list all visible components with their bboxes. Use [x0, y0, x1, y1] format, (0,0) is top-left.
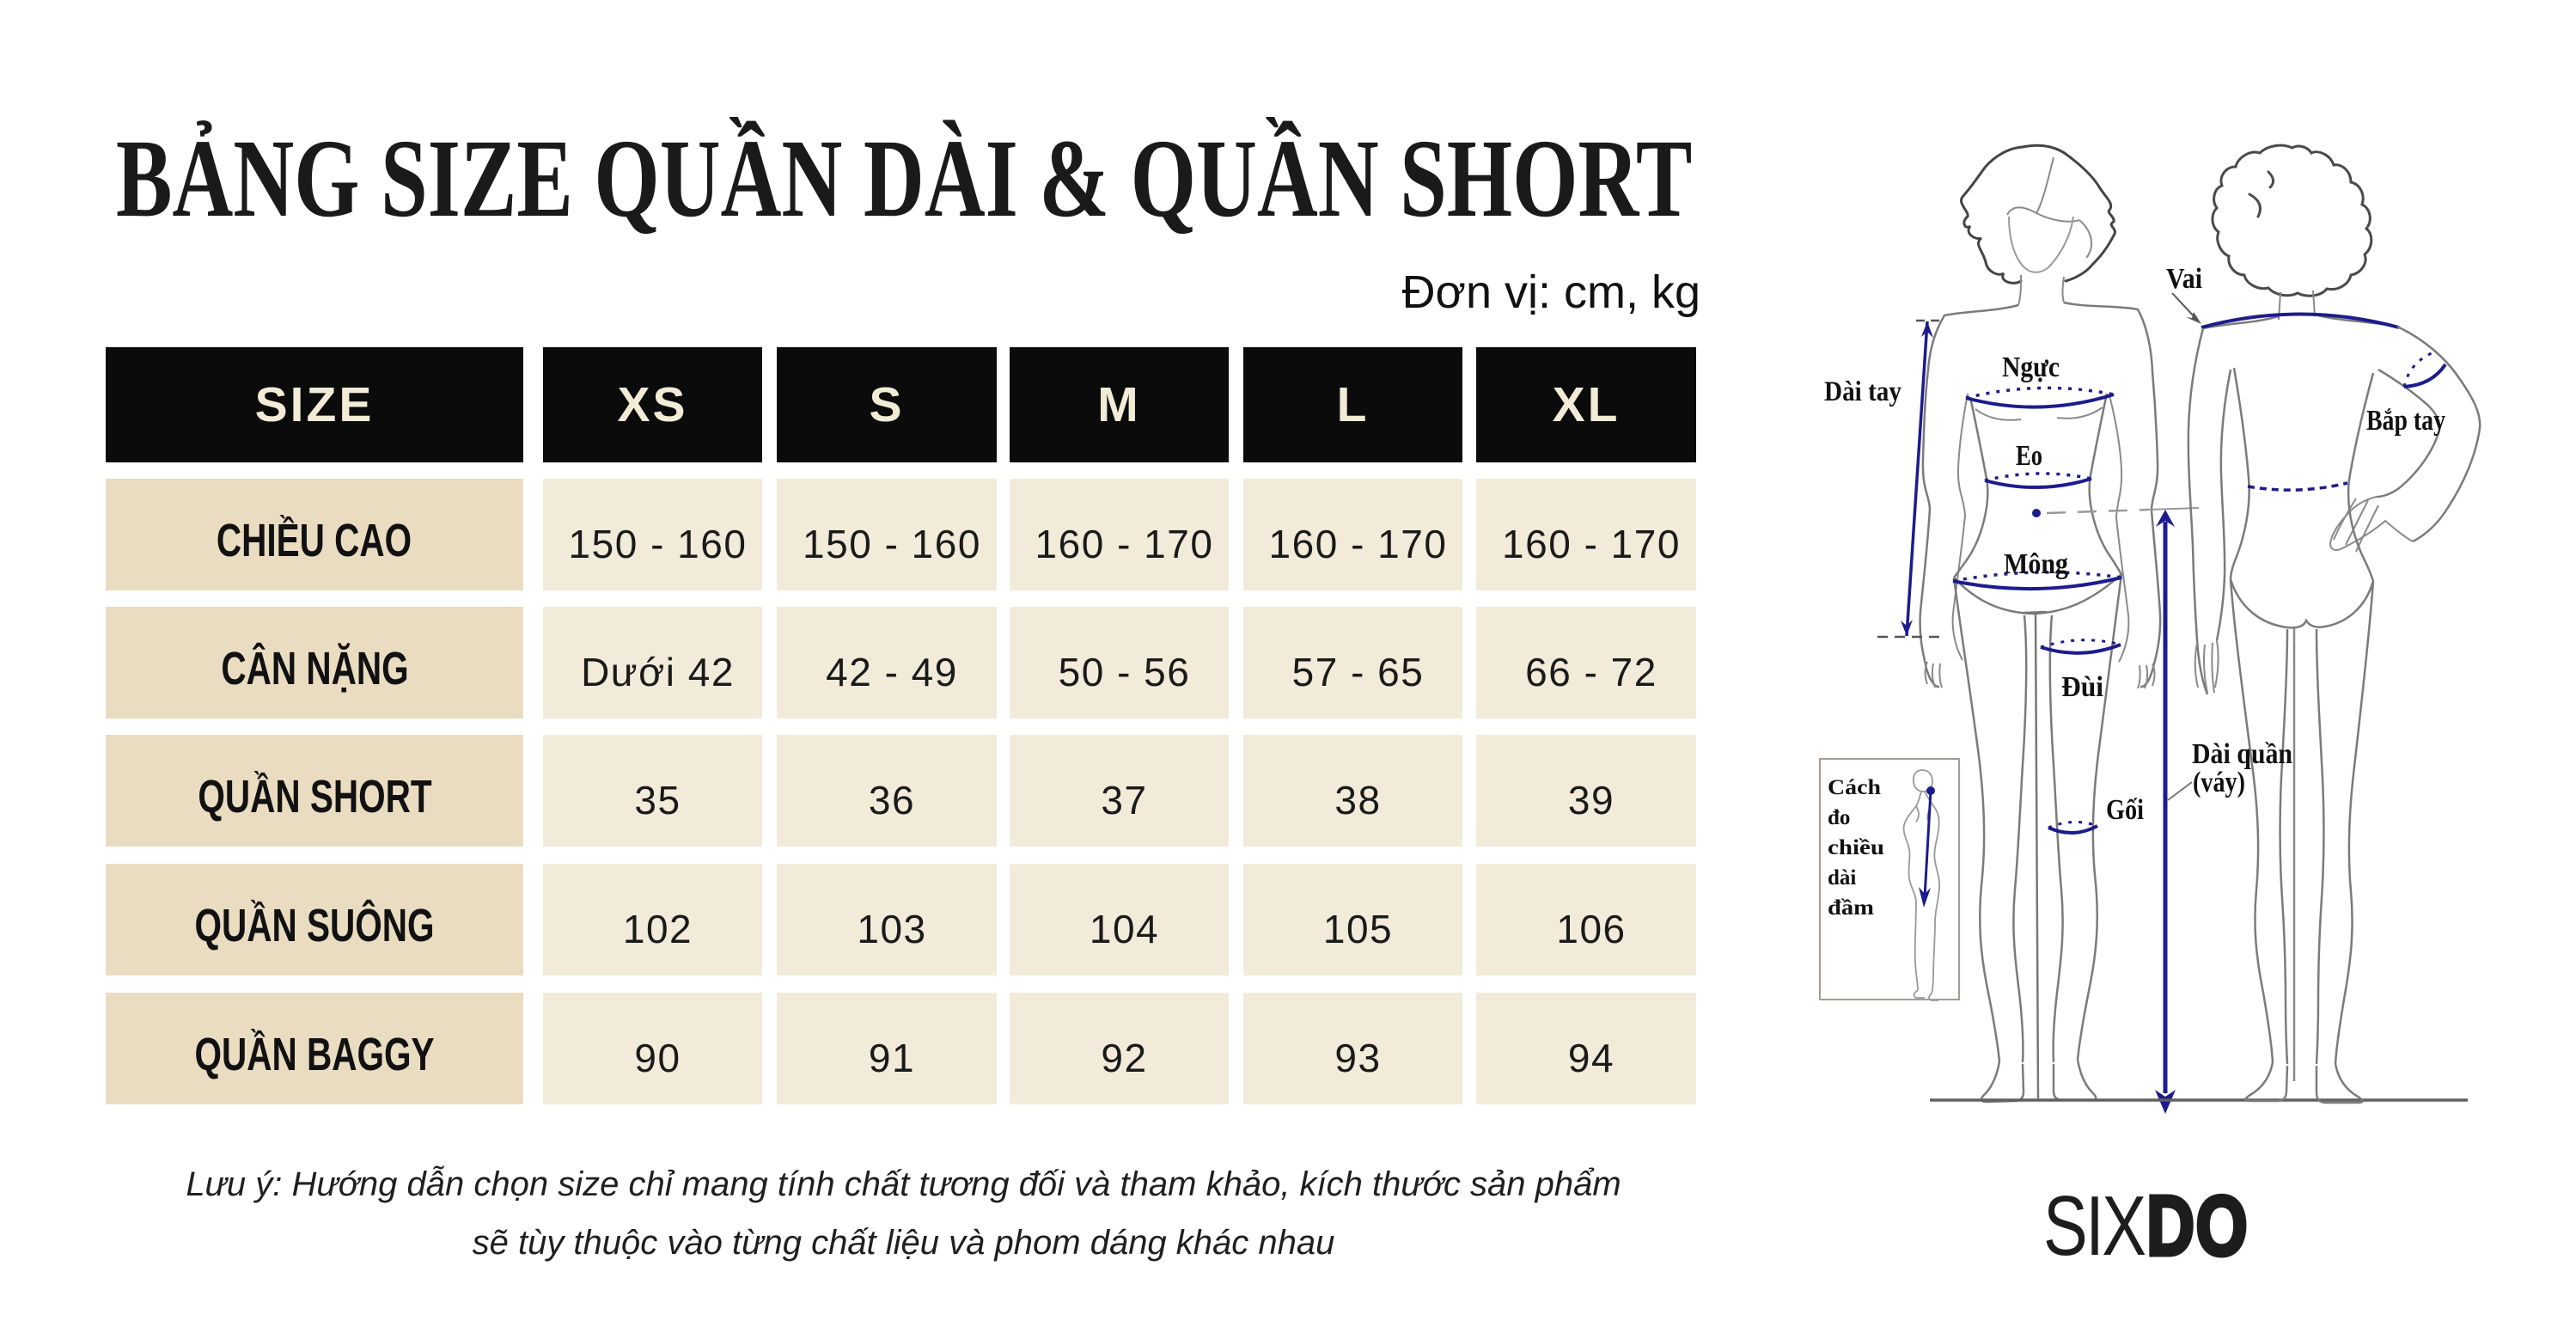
svg-text:(váy): (váy) [2193, 767, 2245, 798]
svg-text:Dài tay: Dài tay [1824, 376, 1901, 407]
svg-text:Ngực: Ngực [2002, 352, 2060, 383]
svg-text:Eo: Eo [2016, 440, 2042, 472]
svg-text:Cách: Cách [1828, 776, 1881, 799]
svg-text:DO: DO [2146, 1178, 2249, 1273]
svg-text:đầm: đầm [1828, 896, 1874, 920]
svg-text:Gối: Gối [2106, 794, 2144, 826]
svg-text:Bắp tay: Bắp tay [2366, 405, 2445, 437]
svg-text:đo: đo [1828, 806, 1850, 829]
svg-text:Dài quần: Dài quần [2192, 738, 2292, 770]
svg-text:chiều: chiều [1828, 836, 1884, 859]
svg-text:SIX: SIX [2043, 1178, 2146, 1273]
svg-text:dài: dài [1828, 866, 1856, 890]
svg-text:Vai: Vai [2166, 263, 2202, 295]
svg-text:Mông: Mông [2004, 548, 2068, 580]
svg-text:Đùi: Đùi [2061, 671, 2103, 703]
